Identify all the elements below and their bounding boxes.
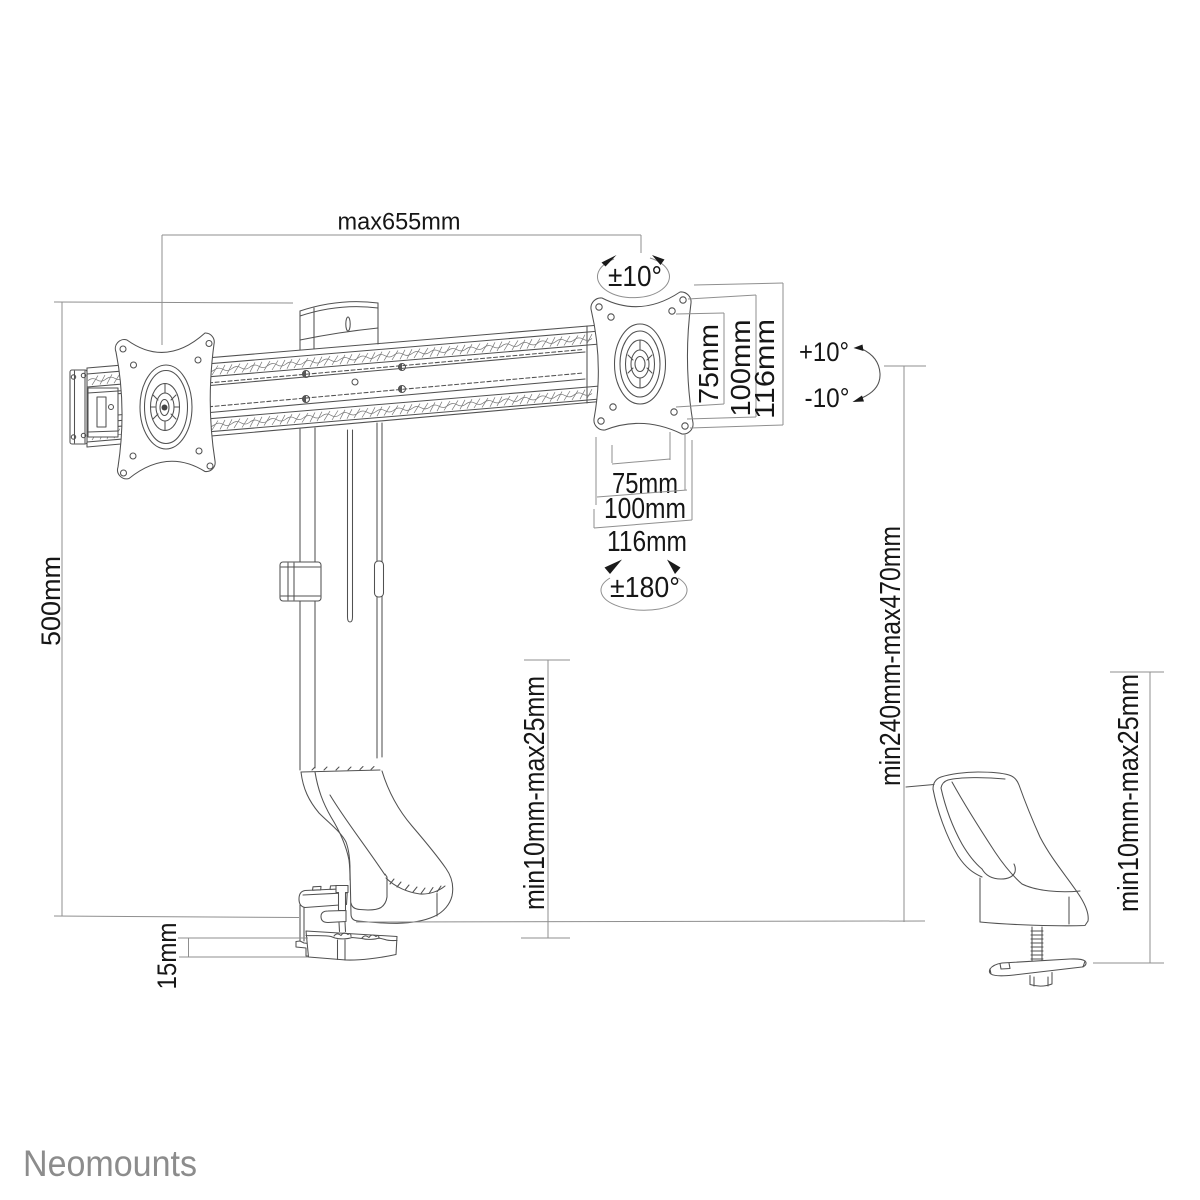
svg-text:min10mm-max25mm: min10mm-max25mm [1113,674,1145,912]
svg-text:Neomounts: Neomounts [23,1143,197,1184]
svg-text:min240mm-max470mm: min240mm-max470mm [875,526,907,786]
svg-text:100mm: 100mm [604,493,686,525]
svg-text:15mm: 15mm [152,923,182,990]
svg-text:-10°: -10° [805,383,850,413]
svg-text:±10°: ±10° [608,261,662,293]
svg-text:500mm: 500mm [36,556,66,646]
svg-text:+10°: +10° [799,337,849,367]
svg-text:75mm: 75mm [693,324,724,404]
svg-text:116mm: 116mm [607,526,687,558]
svg-text:max655mm: max655mm [338,209,461,236]
svg-text:min10mm-max25mm: min10mm-max25mm [519,676,551,910]
svg-text:116mm: 116mm [749,319,780,419]
svg-text:±180°: ±180° [610,572,680,604]
